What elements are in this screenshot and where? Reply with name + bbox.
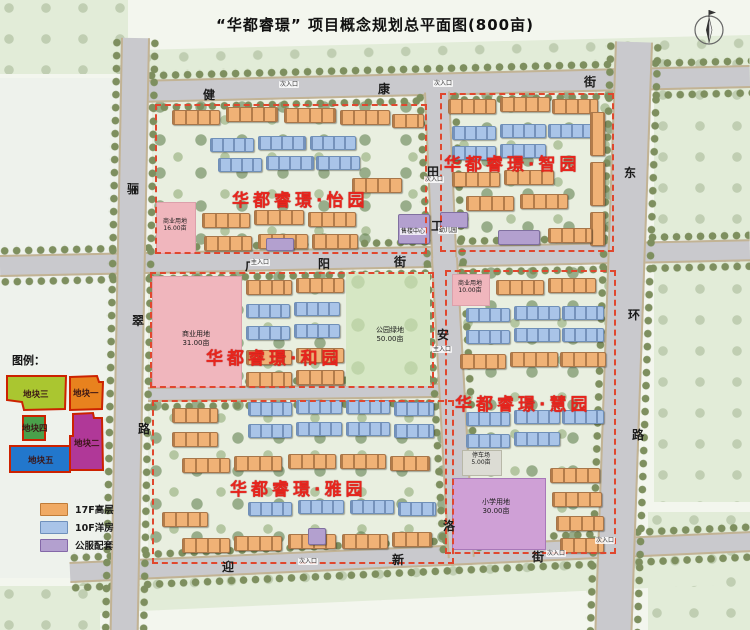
building-10f-flats [218, 158, 262, 172]
building-17f-highrise [496, 280, 544, 295]
label-parking-lot: 停车场 5.00亩 [471, 452, 490, 466]
building-17f-highrise [296, 370, 344, 385]
building-17f-highrise [520, 194, 568, 209]
building-10f-flats [350, 500, 394, 514]
land-use-area: 10.00亩 [458, 287, 481, 294]
entrance-secondary-badge: 次入口 [279, 81, 299, 88]
legend-swatch-10f [40, 521, 68, 534]
road-label-char: 新 [392, 551, 404, 568]
community-label-zhiyuan: 华都睿璟·智园 [444, 150, 580, 175]
building-10f-flats [294, 302, 340, 316]
building-10f-flats [562, 328, 604, 342]
building-17f-highrise [500, 97, 550, 112]
road-label-char: 翠 [132, 312, 144, 329]
building-17f-highrise [308, 212, 356, 227]
building-10f-flats [248, 502, 292, 516]
building-17f-highrise [342, 534, 388, 549]
legend-plot5-label: 地块五 [28, 455, 54, 466]
building-10f-flats [562, 306, 604, 320]
building-17f-highrise [340, 110, 390, 125]
building-17f-highrise [392, 114, 424, 128]
building-10f-flats [346, 422, 390, 436]
road-label-char: 骊 [127, 180, 139, 197]
building-17f-highrise [312, 234, 358, 249]
label-commercial-huiyuan: 商业用地 10.00亩 [458, 280, 482, 294]
entrance-secondary-badge: 次入口 [595, 537, 615, 544]
land-use-name: 停车场 [472, 452, 490, 459]
legend-plot2-label: 地块二 [74, 438, 100, 449]
building-17f-highrise [556, 516, 604, 531]
land-use-area: 30.00亩 [482, 507, 509, 515]
entrance-secondary-badge: 次入口 [298, 558, 318, 565]
building-17f-highrise [340, 454, 386, 469]
entrance-secondary-badge: 次入口 [546, 550, 566, 557]
compass-icon [690, 8, 728, 48]
building-17f-highrise [246, 280, 292, 295]
building-10f-flats [500, 124, 546, 138]
building-17f-highrise [548, 228, 592, 243]
road-label-char: 路 [632, 426, 644, 443]
building-10f-flats [258, 136, 306, 150]
road-label-char: 洛 [443, 517, 455, 534]
parcel-southwest-green [0, 586, 100, 630]
road-label-char: 街 [532, 548, 544, 565]
building-10f-flats [298, 500, 344, 514]
legend-plot3-label: 地块三 [23, 389, 49, 400]
building-17f-highrise [204, 236, 252, 251]
building-17f-highrise [448, 99, 496, 114]
parcel-east-2 [654, 250, 750, 502]
road-label-char: 康 [378, 80, 390, 97]
building-10f-flats [248, 424, 292, 438]
legend-row-public: 公服配套 [40, 536, 114, 554]
legend-label-public: 公服配套 [75, 538, 113, 552]
building-17f-highrise [226, 107, 278, 122]
building-17f-highrise [550, 468, 600, 483]
land-use-name: 小学用地 [482, 498, 510, 506]
road-label-char: 阳 [318, 255, 330, 272]
building-10f-flats [266, 156, 314, 170]
building-17f-highrise [552, 492, 602, 507]
road-label-char: 街 [584, 73, 596, 90]
building-17f-highrise [590, 212, 605, 246]
building-17f-highrise [548, 278, 596, 293]
road-label-char: 迎 [222, 558, 234, 575]
building-public-facility [266, 238, 294, 251]
label-park-green: 公园绿地 50.00亩 [376, 326, 404, 344]
building-10f-flats [452, 126, 496, 140]
building-17f-highrise [246, 372, 292, 387]
road-licui-road [110, 38, 150, 630]
legend-swatch-17f [40, 503, 68, 516]
legend-plot4-label: 地块四 [22, 423, 48, 434]
building-10f-flats [548, 124, 592, 138]
legend-plot1-label: 地块一 [73, 388, 99, 399]
land-use-name: 商业用地 [163, 218, 187, 225]
road-label-char: 路 [138, 420, 150, 437]
building-10f-flats [310, 136, 356, 150]
building-17f-highrise [296, 278, 344, 293]
label-commercial-yiyuan: 商业用地 16.00亩 [163, 218, 187, 232]
building-17f-highrise [390, 456, 430, 471]
legend-row-17f: 17F高层 [40, 500, 114, 518]
building-17f-highrise [172, 432, 218, 447]
building-public-facility [440, 212, 468, 228]
entrance-secondary-badge: 次入口 [433, 80, 453, 87]
building-10f-flats [466, 434, 510, 448]
road-label-char: 街 [394, 253, 406, 270]
building-17f-highrise [202, 213, 250, 228]
road-label-char: 环 [628, 306, 640, 323]
label-school-land: 小学用地 30.00亩 [482, 498, 510, 516]
land-use-name: 公园绿地 [376, 326, 404, 334]
plot-legend: 地块三 地块一 地块四 地块二 地块五 [4, 360, 114, 480]
building-17f-highrise [234, 456, 282, 471]
entrance-secondary-badge: 次入口 [424, 176, 444, 183]
building-17f-highrise [510, 352, 558, 367]
entrance-main-badge: 主入口 [432, 346, 452, 353]
community-label-huiyuan: 华都睿璟·慧园 [455, 390, 591, 415]
building-10f-flats [346, 400, 390, 414]
building-10f-flats [398, 502, 436, 516]
building-17f-highrise [234, 536, 282, 551]
building-17f-highrise [162, 512, 208, 527]
building-10f-flats [316, 156, 360, 170]
building-10f-flats [246, 304, 290, 318]
building-17f-highrise [560, 352, 606, 367]
label-sales-center: 售楼中心 [400, 228, 426, 235]
land-use-name: 商业用地 [458, 280, 482, 287]
legend-swatch-public [40, 539, 68, 552]
building-public-facility [498, 230, 540, 245]
building-10f-flats [248, 402, 292, 416]
building-17f-highrise [182, 458, 230, 473]
page-title: “华都睿璟” 项目概念规划总平面图(800亩) [0, 14, 750, 35]
building-10f-flats [466, 330, 510, 344]
building-17f-highrise [172, 110, 220, 125]
building-10f-flats [514, 328, 560, 342]
road-label-char: 健 [203, 86, 215, 103]
building-10f-flats [246, 326, 290, 340]
building-10f-flats [394, 424, 434, 438]
building-17f-highrise [460, 354, 506, 369]
label-kindergarten: 幼儿园 [438, 227, 458, 234]
building-10f-flats [294, 324, 340, 338]
building-17f-highrise [284, 108, 336, 123]
building-10f-flats [514, 306, 560, 320]
land-use-area: 16.00亩 [163, 225, 186, 232]
building-17f-highrise [172, 408, 218, 423]
building-10f-flats [210, 138, 254, 152]
building-17f-highrise [466, 196, 514, 211]
community-label-yiyuan: 华都睿璟·怡园 [232, 186, 368, 211]
building-17f-highrise [590, 162, 605, 206]
legend-label-17f: 17F高层 [75, 502, 114, 516]
building-10f-flats [466, 308, 510, 322]
community-label-heyuan: 华都睿璟·和园 [206, 344, 342, 369]
building-17f-highrise [392, 532, 432, 547]
site-plan-map: “华都睿璟” 项目概念规划总平面图(800亩) 华都睿璟·怡园 华都睿璟·智园 … [0, 0, 750, 630]
land-use-name: 商业用地 [182, 330, 210, 338]
road-label-char: 安 [437, 326, 449, 343]
building-17f-highrise [288, 454, 336, 469]
building-10f-flats [514, 432, 560, 446]
legend-row-10f: 10F洋房 [40, 518, 114, 536]
road-label-char: 东 [624, 164, 636, 181]
legend-label-10f: 10F洋房 [75, 520, 114, 534]
building-10f-flats [296, 400, 342, 414]
land-use-area: 5.00亩 [471, 459, 490, 466]
building-17f-highrise [254, 210, 304, 225]
building-type-legend: 17F高层 10F洋房 公服配套 [40, 500, 114, 554]
parcel-northwest-green [0, 0, 128, 74]
building-public-facility [308, 528, 326, 545]
building-10f-flats [296, 422, 342, 436]
land-use-area: 50.00亩 [376, 335, 403, 343]
building-17f-highrise [182, 538, 230, 553]
community-label-yayuan: 华都睿璟·雅园 [230, 475, 366, 500]
building-17f-highrise [590, 112, 605, 156]
building-10f-flats [394, 402, 434, 416]
entrance-main-badge: 主入口 [250, 259, 270, 266]
